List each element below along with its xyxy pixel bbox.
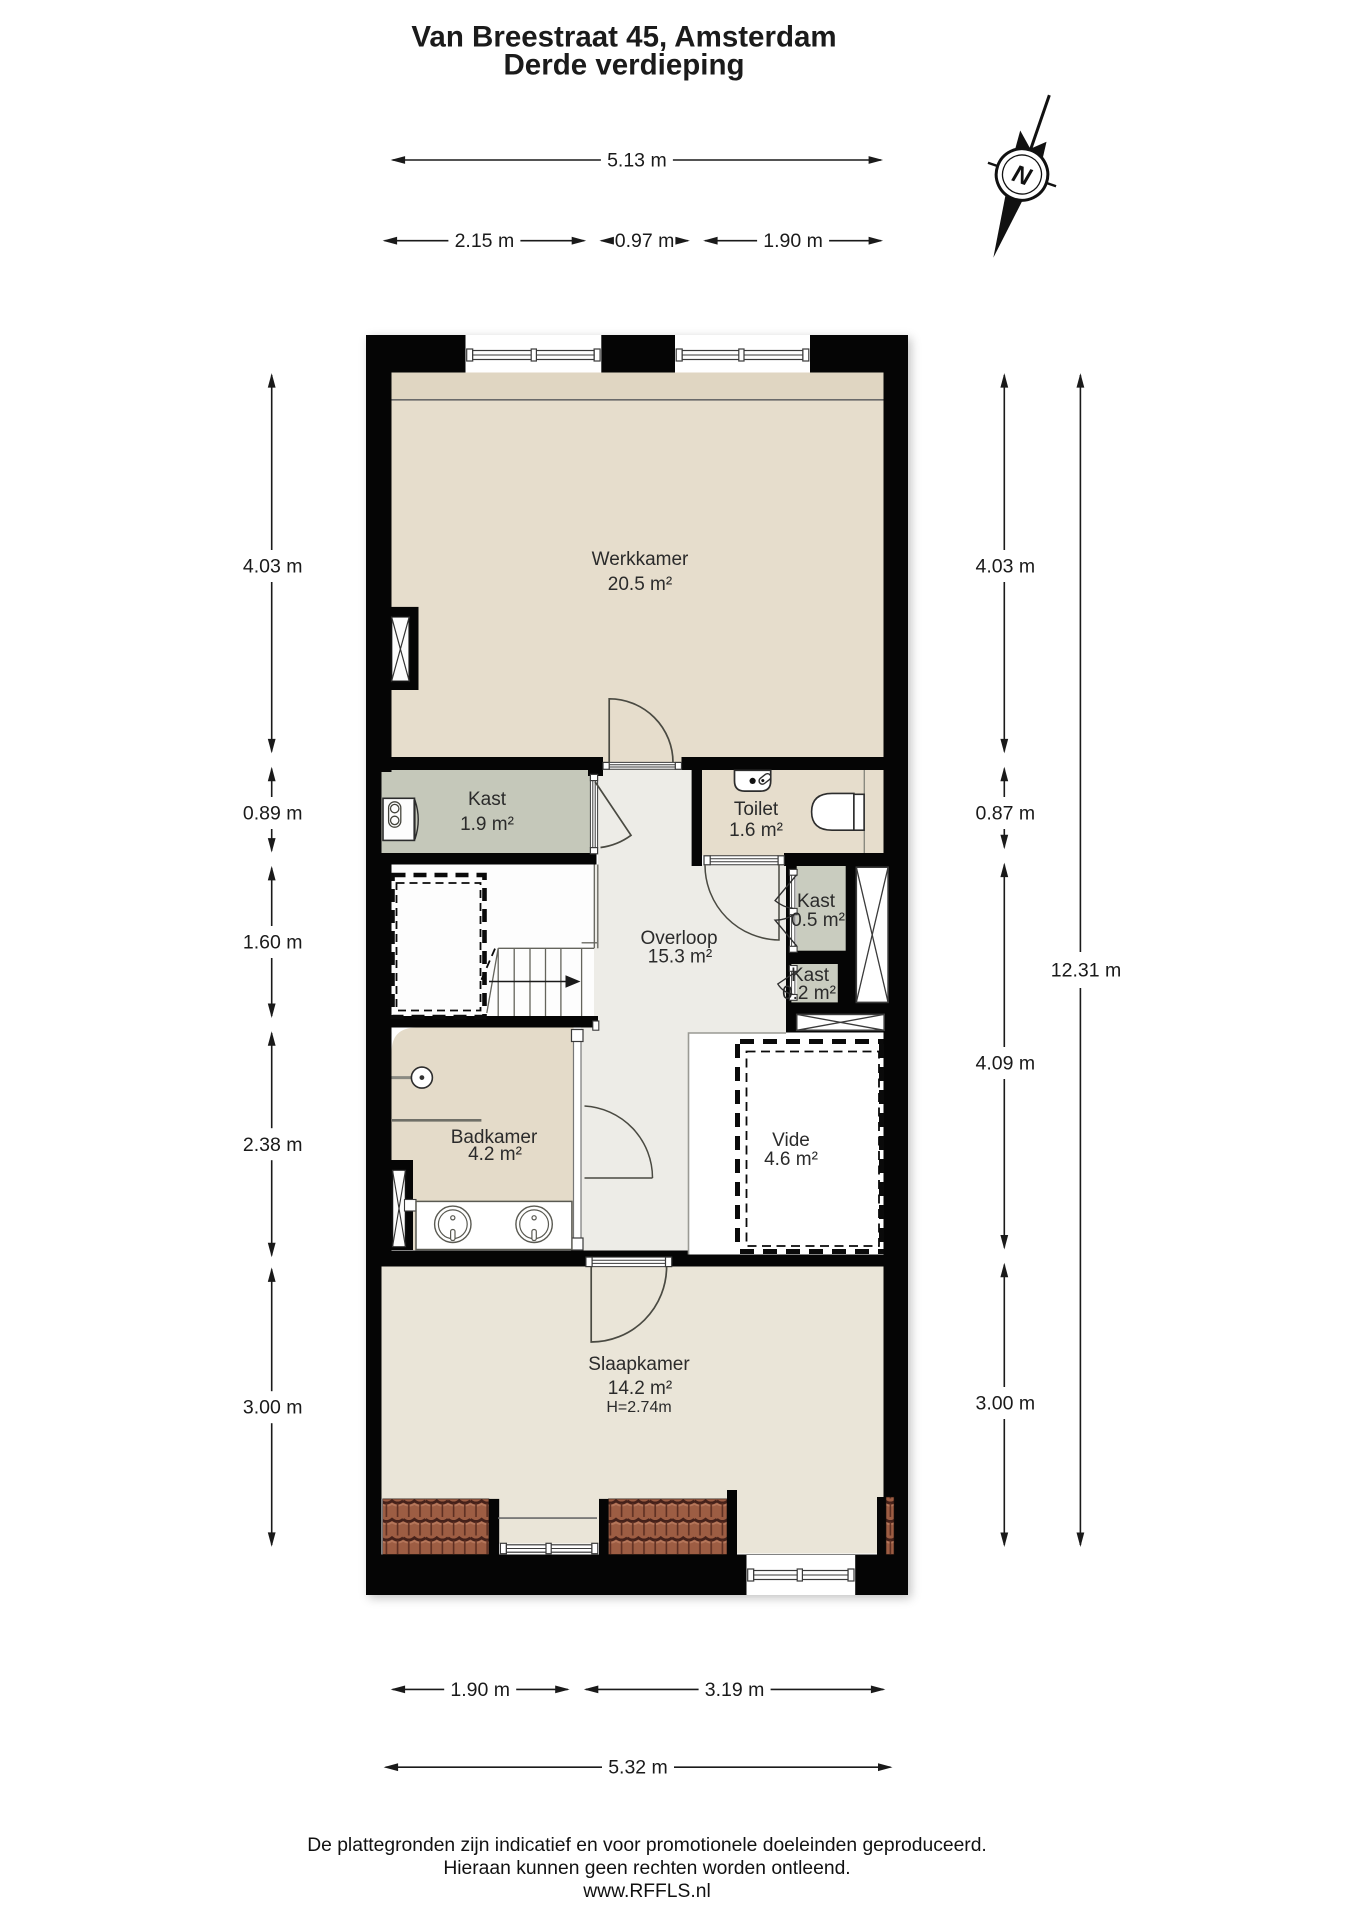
svg-text:Slaapkamer: Slaapkamer — [588, 1354, 690, 1375]
svg-text:Werkkamer: Werkkamer — [592, 549, 689, 570]
svg-text:H=2.74m: H=2.74m — [606, 1399, 671, 1416]
svg-text:1.60 m: 1.60 m — [243, 932, 303, 954]
svg-text:5.32 m: 5.32 m — [608, 1757, 668, 1779]
svg-text:0.87 m: 0.87 m — [975, 803, 1035, 825]
svg-text:4.03 m: 4.03 m — [243, 556, 303, 578]
svg-text:3.00 m: 3.00 m — [975, 1393, 1035, 1415]
svg-text:5.13 m: 5.13 m — [607, 150, 667, 172]
svg-text:4.6 m²: 4.6 m² — [764, 1149, 818, 1170]
svg-text:1.90 m: 1.90 m — [450, 1679, 510, 1701]
svg-text:4.2 m²: 4.2 m² — [468, 1144, 522, 1165]
svg-text:2.15 m: 2.15 m — [455, 230, 515, 252]
svg-text:3.00 m: 3.00 m — [243, 1397, 303, 1419]
svg-text:3.19 m: 3.19 m — [705, 1679, 765, 1701]
svg-text:4.09 m: 4.09 m — [975, 1053, 1035, 1075]
svg-text:0.97 m: 0.97 m — [615, 230, 675, 252]
svg-text:15.3 m²: 15.3 m² — [648, 947, 712, 968]
svg-text:0.5 m²: 0.5 m² — [791, 910, 845, 931]
svg-text:Hieraan kunnen geen rechten wo: Hieraan kunnen geen rechten worden ontle… — [443, 1858, 850, 1879]
svg-text:1.90 m: 1.90 m — [763, 230, 823, 252]
svg-text:14.2 m²: 14.2 m² — [608, 1378, 672, 1399]
svg-text:Vide: Vide — [772, 1130, 810, 1151]
svg-text:2.38 m: 2.38 m — [243, 1134, 303, 1156]
svg-text:1.6 m²: 1.6 m² — [729, 820, 783, 841]
svg-text:0.2 m²: 0.2 m² — [782, 983, 836, 1004]
svg-text:0.89 m: 0.89 m — [243, 803, 303, 825]
svg-text:20.5 m²: 20.5 m² — [608, 574, 672, 595]
svg-text:4.03 m: 4.03 m — [975, 556, 1035, 578]
svg-text:1.9 m²: 1.9 m² — [460, 814, 514, 835]
svg-text:Toilet: Toilet — [734, 799, 779, 820]
svg-text:Kast: Kast — [468, 789, 507, 810]
svg-text:Derde verdieping: Derde verdieping — [504, 49, 745, 82]
svg-text:Kast: Kast — [797, 891, 836, 912]
svg-text:12.31 m: 12.31 m — [1051, 960, 1121, 982]
svg-text:De plattegronden zijn indicati: De plattegronden zijn indicatief en voor… — [307, 1835, 987, 1856]
svg-text:www.RFFLS.nl: www.RFFLS.nl — [582, 1881, 711, 1902]
